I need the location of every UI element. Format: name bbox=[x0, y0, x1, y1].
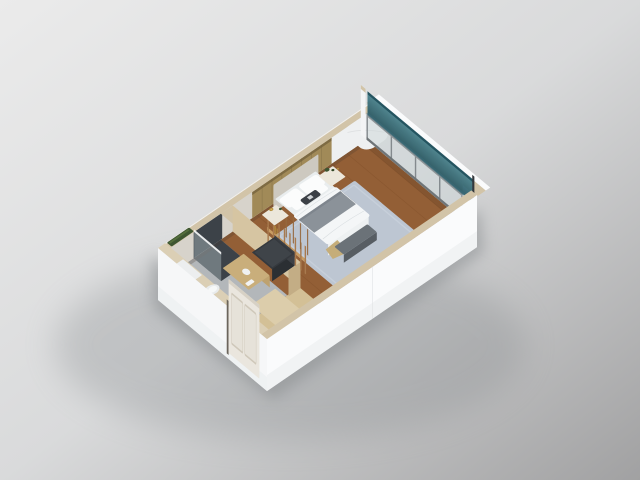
slat bbox=[293, 217, 294, 244]
slat bbox=[305, 245, 306, 274]
slat bbox=[300, 223, 301, 250]
isometric-floorplan bbox=[0, 0, 640, 480]
door-opening-gap bbox=[227, 299, 229, 355]
slat bbox=[295, 237, 296, 266]
floorplan-render-canvas bbox=[0, 0, 640, 480]
door-panel bbox=[231, 293, 242, 353]
north-wall-fin bbox=[361, 85, 366, 139]
gold-bottle bbox=[275, 225, 276, 234]
door-panel bbox=[245, 304, 256, 364]
gold-bottle bbox=[277, 228, 278, 236]
slat bbox=[307, 229, 308, 256]
